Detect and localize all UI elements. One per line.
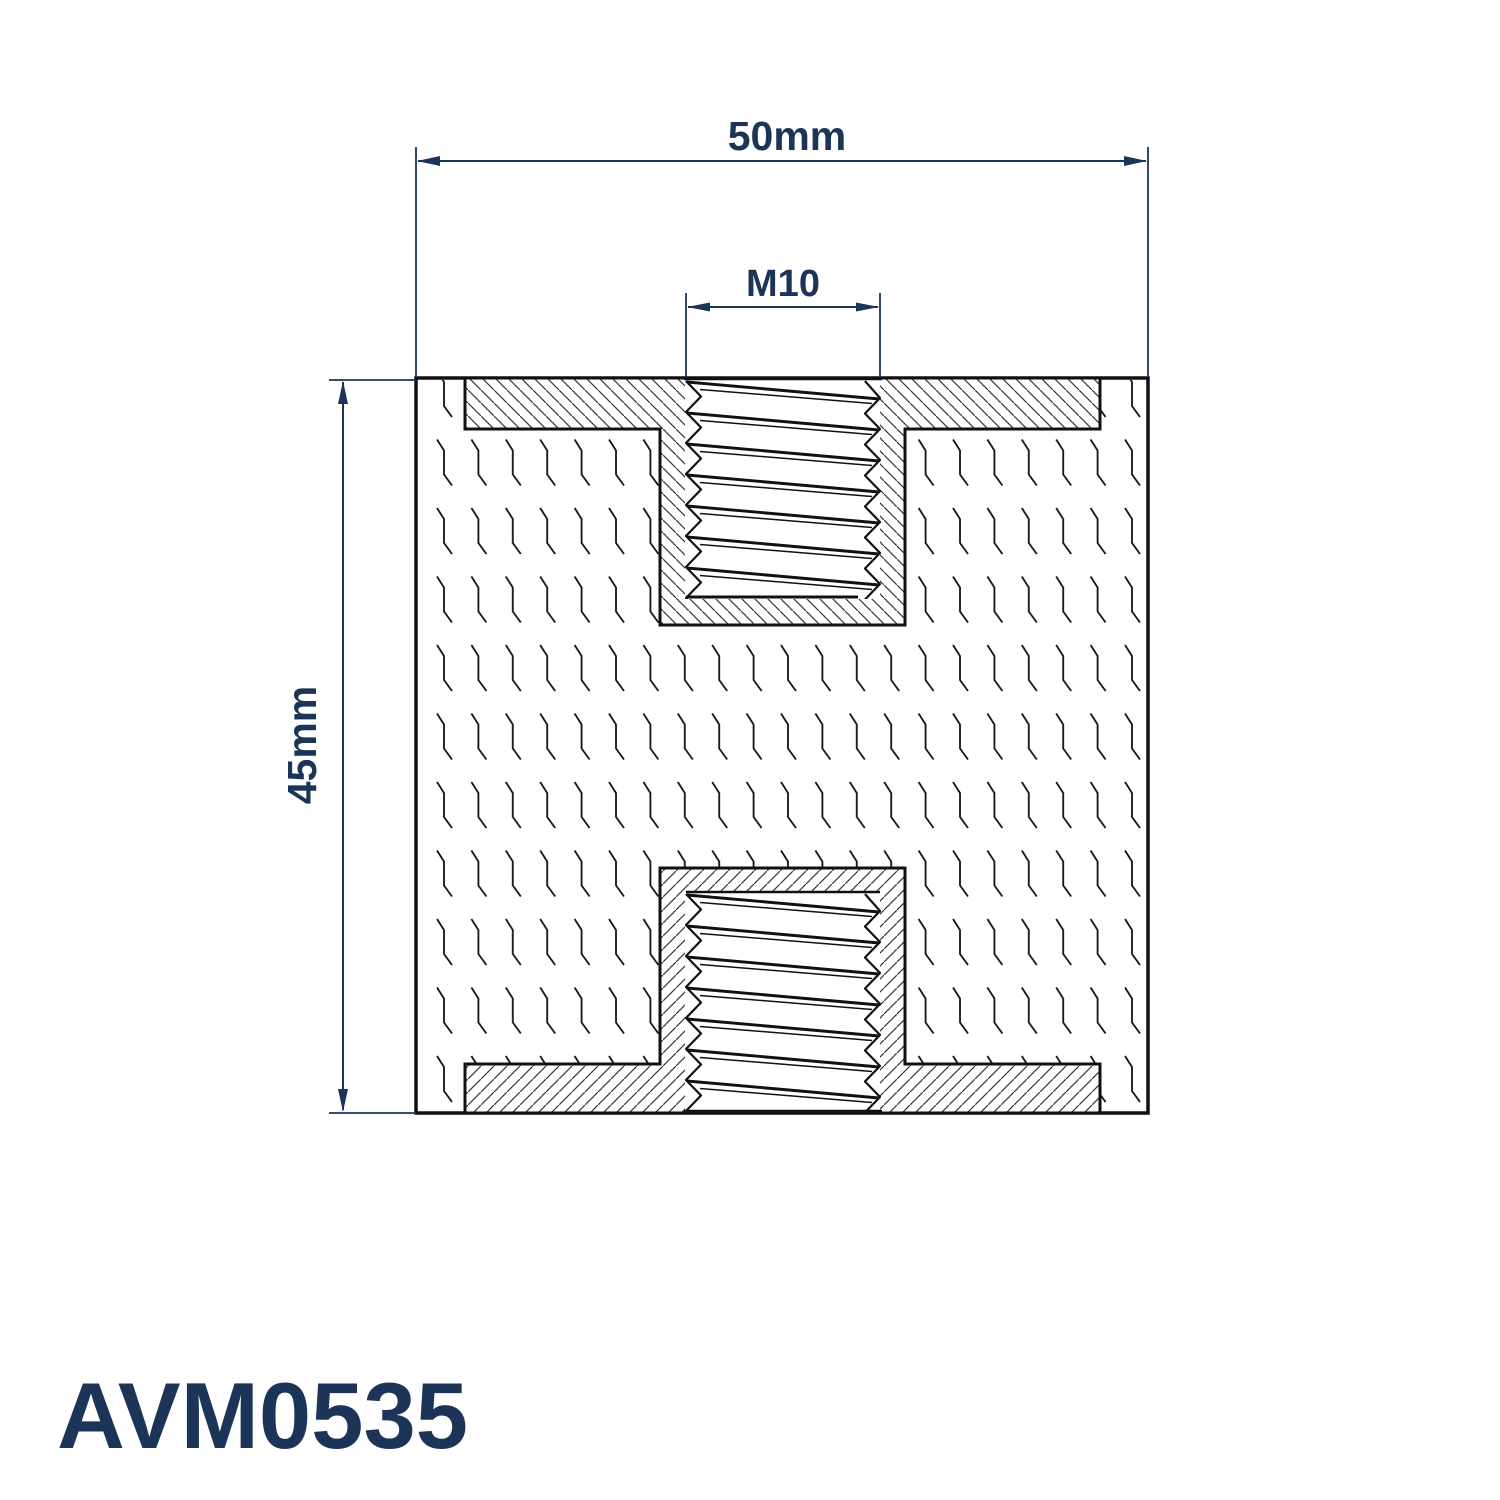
technical-drawing-page: 50mm M10 45mm AVM0535	[0, 0, 1500, 1500]
thread-arrow-right	[856, 303, 879, 312]
technical-drawing: 50mm M10 45mm AVM0535	[0, 0, 1500, 1500]
dimension-width	[416, 147, 1148, 377]
part-number-label: AVM0535	[57, 1363, 468, 1468]
width-dim-label: 50mm	[728, 113, 847, 159]
dimension-thread	[686, 293, 880, 377]
dimension-height	[329, 380, 416, 1113]
height-arrow-bottom	[338, 1089, 348, 1112]
height-dim-label: 45mm	[279, 686, 325, 805]
height-arrow-top	[338, 381, 348, 404]
thread-arrow-left	[687, 303, 710, 312]
thread-dim-label: M10	[746, 263, 820, 305]
width-arrow-left	[417, 156, 440, 166]
width-arrow-right	[1124, 156, 1147, 166]
bottom-thread-window	[685, 891, 880, 1111]
